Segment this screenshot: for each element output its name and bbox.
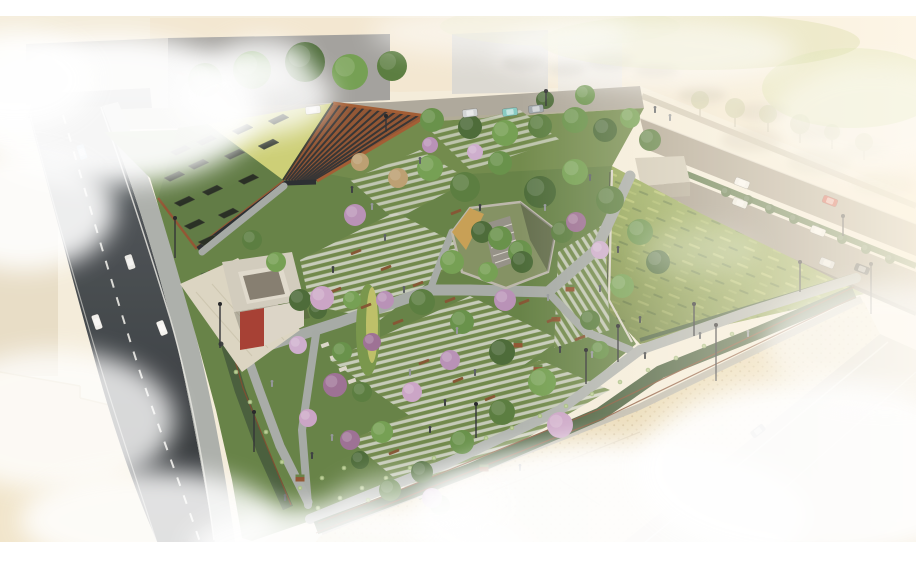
bottom-margin xyxy=(0,542,916,563)
fog-cloud xyxy=(330,470,510,540)
fog-cloud xyxy=(640,225,760,275)
park-rendering xyxy=(0,0,916,563)
top-margin xyxy=(0,0,916,16)
fog-cloud xyxy=(216,38,308,90)
rendering-canvas xyxy=(0,0,916,563)
